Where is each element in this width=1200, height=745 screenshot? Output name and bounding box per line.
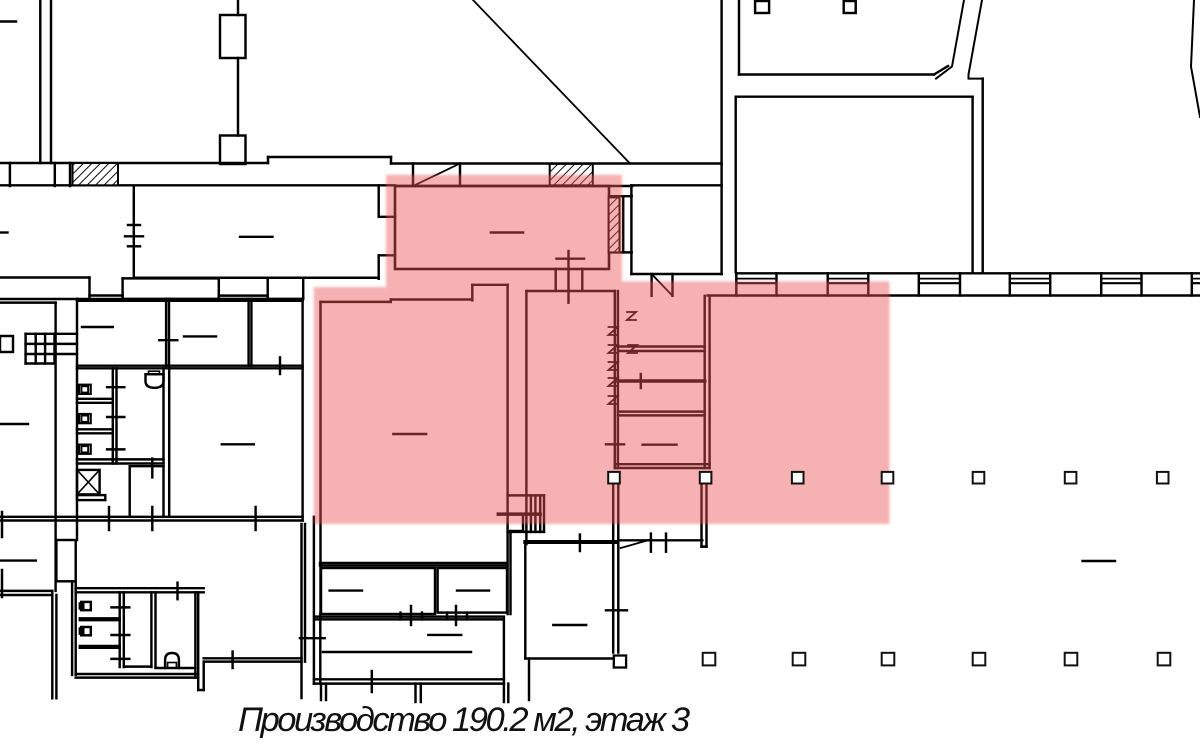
svg-text:Производство 190.2 м2, этаж 3: Производство 190.2 м2, этаж 3 bbox=[238, 701, 690, 739]
